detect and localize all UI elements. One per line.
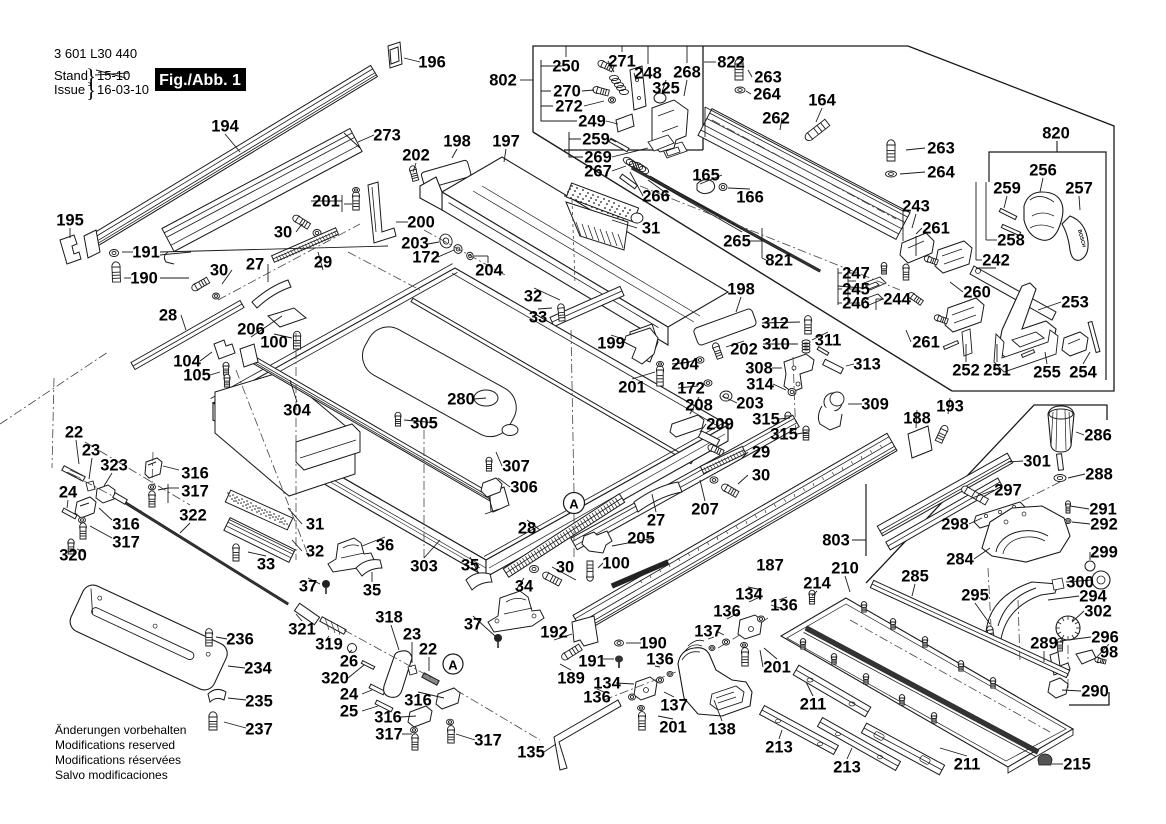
svg-text:201: 201 — [659, 719, 687, 737]
svg-text:27: 27 — [647, 512, 665, 530]
svg-text:309: 309 — [861, 396, 889, 414]
svg-text:138: 138 — [708, 721, 736, 739]
svg-text:25: 25 — [340, 703, 358, 721]
svg-text:321: 321 — [288, 621, 316, 639]
svg-text:264: 264 — [927, 164, 955, 182]
svg-text:312: 312 — [761, 315, 789, 333]
svg-text:198: 198 — [727, 281, 755, 299]
svg-text:A: A — [448, 658, 458, 673]
svg-text:28: 28 — [159, 307, 177, 325]
svg-text:134: 134 — [735, 586, 763, 604]
svg-text:166: 166 — [736, 189, 764, 207]
svg-text:A: A — [569, 497, 579, 512]
svg-text:189: 189 — [557, 670, 585, 688]
svg-text:211: 211 — [954, 756, 981, 774]
svg-text:207: 207 — [691, 501, 719, 519]
svg-text:204: 204 — [671, 356, 699, 374]
svg-text:295: 295 — [961, 587, 989, 605]
svg-text:271: 271 — [608, 53, 636, 71]
svg-text:259: 259 — [582, 131, 610, 149]
svg-text:803: 803 — [822, 532, 850, 550]
svg-text:Modifications réservées: Modifications réservées — [55, 753, 181, 767]
svg-text:34: 34 — [515, 578, 534, 596]
svg-text:Fig./Abb. 1: Fig./Abb. 1 — [159, 72, 241, 89]
svg-text:262: 262 — [762, 110, 790, 128]
svg-text:289: 289 — [1030, 635, 1058, 653]
svg-text:260: 260 — [963, 284, 991, 302]
svg-text:105: 105 — [183, 367, 211, 385]
svg-text:802: 802 — [489, 72, 517, 90]
svg-text:259: 259 — [993, 180, 1021, 198]
svg-text:98: 98 — [1100, 644, 1118, 662]
svg-text:316: 316 — [404, 692, 432, 710]
svg-text:Stand: Stand — [54, 68, 88, 83]
svg-text:244: 244 — [883, 291, 911, 309]
svg-text:204: 204 — [475, 262, 503, 280]
svg-text:201: 201 — [618, 379, 646, 397]
svg-text:303: 303 — [410, 558, 438, 576]
svg-text:320: 320 — [59, 547, 87, 565]
svg-text:325: 325 — [652, 80, 680, 98]
svg-text:298: 298 — [941, 516, 969, 534]
svg-text:Issue: Issue — [54, 82, 85, 97]
svg-text:252: 252 — [952, 362, 980, 380]
svg-text:317: 317 — [181, 483, 209, 501]
svg-text:136: 136 — [646, 651, 674, 669]
svg-text:319: 319 — [315, 636, 343, 654]
svg-text:201: 201 — [312, 193, 340, 211]
svg-text:28: 28 — [518, 520, 536, 538]
svg-text:36: 36 — [376, 537, 394, 555]
svg-text:263: 263 — [927, 140, 955, 158]
svg-text:33: 33 — [529, 309, 547, 327]
svg-text:136: 136 — [713, 603, 741, 621]
svg-text:237: 237 — [245, 721, 273, 739]
svg-text:30: 30 — [556, 559, 574, 577]
svg-text:37: 37 — [299, 578, 317, 596]
svg-text:100: 100 — [602, 555, 630, 573]
svg-text:305: 305 — [410, 415, 438, 433]
svg-text:261: 261 — [922, 220, 950, 238]
svg-text:197: 197 — [492, 133, 520, 151]
svg-text:263: 263 — [754, 69, 782, 87]
svg-text:304: 304 — [283, 402, 311, 420]
svg-text:23: 23 — [82, 442, 100, 460]
svg-text:15-10: 15-10 — [97, 68, 130, 83]
svg-text:200: 200 — [407, 214, 435, 232]
svg-text:205: 205 — [627, 530, 655, 548]
svg-text:257: 257 — [1065, 180, 1093, 198]
svg-text:31: 31 — [642, 220, 660, 238]
svg-text:318: 318 — [375, 609, 403, 627]
svg-text:208: 208 — [685, 397, 713, 415]
svg-text:32: 32 — [524, 288, 542, 306]
svg-text:135: 135 — [517, 744, 545, 762]
svg-text:266: 266 — [642, 188, 670, 206]
svg-text:195: 195 — [56, 212, 84, 230]
svg-text:323: 323 — [100, 457, 128, 475]
svg-text:286: 286 — [1084, 427, 1112, 445]
svg-text:100: 100 — [260, 334, 288, 352]
svg-text:316: 316 — [112, 516, 140, 534]
svg-text:193: 193 — [936, 398, 964, 416]
svg-text:29: 29 — [314, 254, 332, 272]
svg-text:297: 297 — [994, 482, 1022, 500]
svg-text:136: 136 — [770, 597, 798, 615]
svg-text:30: 30 — [210, 262, 228, 280]
svg-text:Salvo modificaciones: Salvo modificaciones — [55, 768, 168, 782]
svg-text:30: 30 — [274, 224, 292, 242]
svg-text:306: 306 — [510, 479, 538, 497]
svg-text:280: 280 — [447, 391, 475, 409]
svg-text:821: 821 — [765, 252, 793, 270]
svg-text:22: 22 — [419, 641, 437, 659]
svg-text:165: 165 — [692, 167, 720, 185]
svg-text:188: 188 — [903, 410, 931, 428]
svg-text:253: 253 — [1061, 294, 1089, 312]
svg-text:164: 164 — [808, 92, 836, 110]
svg-text:27: 27 — [246, 256, 264, 274]
svg-text:136: 136 — [583, 689, 611, 707]
svg-text:255: 255 — [1033, 364, 1061, 382]
svg-text:236: 236 — [226, 631, 254, 649]
svg-text:26: 26 — [340, 653, 358, 671]
svg-text:285: 285 — [901, 568, 929, 586]
svg-text:311: 311 — [815, 332, 842, 350]
svg-text:299: 299 — [1090, 544, 1118, 562]
svg-text:300: 300 — [1066, 574, 1094, 592]
svg-text:35: 35 — [461, 557, 479, 575]
svg-text:194: 194 — [211, 118, 239, 136]
svg-text:820: 820 — [1042, 125, 1070, 143]
svg-text:202: 202 — [402, 147, 430, 165]
svg-text:242: 242 — [982, 252, 1010, 270]
svg-text:196: 196 — [418, 54, 446, 72]
svg-text:190: 190 — [130, 270, 158, 288]
svg-text:234: 234 — [244, 660, 272, 678]
svg-text:265: 265 — [723, 233, 751, 251]
svg-text:243: 243 — [902, 198, 930, 216]
svg-text:191: 191 — [578, 653, 606, 671]
svg-text:187: 187 — [756, 557, 784, 575]
svg-text:316: 316 — [374, 709, 402, 727]
svg-text:192: 192 — [540, 624, 568, 642]
svg-text:Änderungen vorbehalten: Änderungen vorbehalten — [55, 723, 186, 737]
svg-text:317: 317 — [375, 726, 403, 744]
svg-text:16-03-10: 16-03-10 — [97, 82, 149, 97]
svg-text:264: 264 — [753, 86, 781, 104]
svg-text:314: 314 — [746, 376, 774, 394]
svg-text:288: 288 — [1085, 466, 1113, 484]
svg-text:261: 261 — [912, 334, 940, 352]
svg-text:32: 32 — [306, 543, 324, 561]
svg-text:198: 198 — [443, 133, 471, 151]
svg-text:307: 307 — [502, 458, 530, 476]
svg-text:137: 137 — [660, 697, 688, 715]
svg-text:29: 29 — [752, 444, 770, 462]
svg-text:33: 33 — [257, 556, 275, 574]
svg-text:31: 31 — [306, 516, 324, 534]
svg-text:24: 24 — [59, 484, 78, 502]
svg-text:24: 24 — [340, 686, 359, 704]
svg-text:211: 211 — [800, 696, 827, 714]
svg-text:256: 256 — [1029, 162, 1057, 180]
svg-text:209: 209 — [706, 416, 734, 434]
svg-text:310: 310 — [762, 336, 790, 354]
svg-text:316: 316 — [181, 465, 209, 483]
svg-text:22: 22 — [65, 424, 83, 442]
svg-text:191: 191 — [132, 244, 160, 262]
svg-text:246: 246 — [842, 295, 870, 313]
svg-text:258: 258 — [997, 232, 1025, 250]
svg-text:317: 317 — [474, 732, 502, 750]
svg-text:30: 30 — [752, 467, 770, 485]
svg-text:301: 301 — [1023, 453, 1051, 471]
svg-text:291: 291 — [1089, 501, 1117, 519]
svg-text:172: 172 — [677, 380, 705, 398]
svg-text:210: 210 — [831, 560, 859, 578]
svg-text:317: 317 — [112, 534, 140, 552]
svg-text:313: 313 — [853, 356, 881, 374]
svg-text:254: 254 — [1069, 364, 1097, 382]
svg-text:202: 202 — [730, 341, 758, 359]
svg-text:235: 235 — [245, 693, 273, 711]
svg-text:3 601 L30 440: 3 601 L30 440 — [54, 46, 137, 61]
svg-text:273: 273 — [373, 127, 401, 145]
svg-text:315: 315 — [770, 426, 798, 444]
svg-text:137: 137 — [694, 623, 722, 641]
svg-text:215: 215 — [1063, 756, 1091, 774]
svg-text:172: 172 — [412, 249, 440, 267]
svg-text:213: 213 — [765, 739, 793, 757]
svg-text:37: 37 — [464, 616, 482, 634]
svg-text:35: 35 — [363, 582, 381, 600]
svg-text:214: 214 — [803, 575, 831, 593]
svg-text:290: 290 — [1081, 683, 1109, 701]
svg-text:}: } — [86, 78, 96, 102]
svg-text:250: 250 — [552, 58, 580, 76]
svg-text:251: 251 — [983, 362, 1011, 380]
svg-text:284: 284 — [946, 551, 974, 569]
svg-text:Modifications reserved: Modifications reserved — [55, 738, 175, 752]
svg-text:822: 822 — [717, 54, 745, 72]
svg-text:213: 213 — [833, 759, 861, 777]
svg-text:267: 267 — [584, 163, 612, 181]
svg-text:249: 249 — [578, 113, 606, 131]
svg-text:201: 201 — [763, 659, 791, 677]
svg-text:322: 322 — [179, 507, 207, 525]
svg-text:199: 199 — [597, 335, 625, 353]
